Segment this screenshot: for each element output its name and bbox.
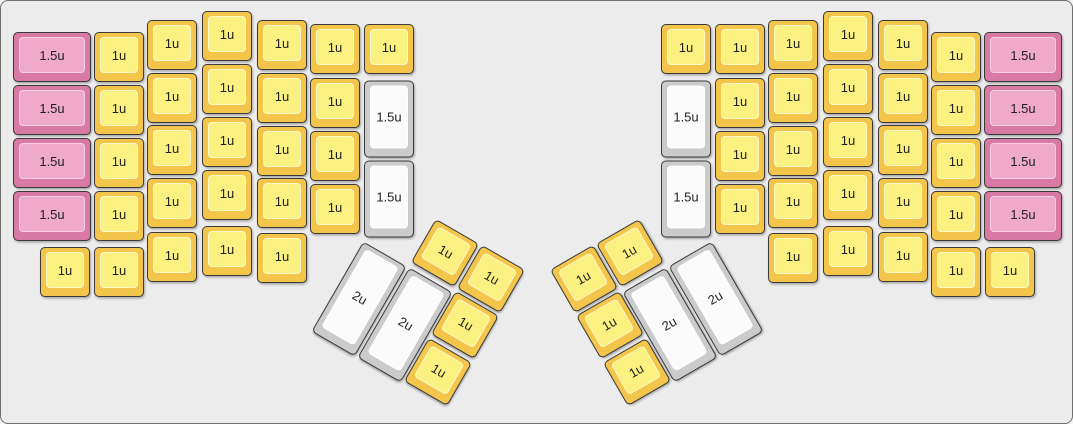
keycap-1_5u-pink[interactable]: 1.5u [984,32,1062,82]
keycap-size-label: 1u [328,148,342,161]
keycap-top-face: 1u [100,252,138,288]
keycap-size-label: 1.5u [1010,102,1035,115]
keycap-size-label: 1u [841,187,855,200]
keycap-size-label: 1.5u [1010,49,1035,62]
keycap-top-face: 1u [46,252,84,288]
keycap-1u-yellow[interactable]: 1u [257,126,307,176]
keycap-size-label: 1u [733,148,747,161]
keycap-size-label: 1u [841,81,855,94]
keycap-size-label: 1u [949,208,963,221]
keycap-1_5u-pink[interactable]: 1.5u [984,138,1062,188]
keycap-1u-yellow[interactable]: 1u [94,32,144,82]
keycap-size-label: 1u [112,208,126,221]
keycap-size-label: 1u [679,41,693,54]
keycap-1u-yellow[interactable]: 1u [931,85,981,135]
keycap-top-face: 1u [721,189,759,225]
keycap-size-label: 1u [328,41,342,54]
keycap-top-face: 1u [937,37,975,73]
keycap-top-face: 1u [721,83,759,119]
keycap-top-face: 1u [991,252,1029,288]
keycap-size-label: 1u [786,195,800,208]
keycap-1u-yellow[interactable]: 1u [202,226,252,276]
keycap-size-label: 1u [841,28,855,41]
keycap-size-label: 1u [112,264,126,277]
keycap-top-face: 1u [414,345,465,395]
keycap-size-label: 1u [112,102,126,115]
keycap-1u-yellow[interactable]: 1u [878,20,928,70]
keycap-top-face: 1u [100,37,138,73]
keycap-size-label: 1u [573,268,592,286]
keycap-top-face: 1u [937,90,975,126]
keycap-1u-yellow[interactable]: 1u [257,73,307,123]
keycap-top-face: 1u [100,143,138,179]
keycap-1_5u-pink[interactable]: 1.5u [13,138,91,188]
keycap-1u-yellow[interactable]: 1u [94,138,144,188]
keycap-1u-yellow[interactable]: 1u [202,170,252,220]
keycap-size-label: 1u [456,314,475,332]
keycap-1u-yellow[interactable]: 1u [147,125,197,175]
keycap-top-face: 1u [774,183,812,219]
keycap-1u-yellow[interactable]: 1u [768,126,818,176]
keycap-1u-yellow[interactable]: 1u [823,64,873,114]
keycap-size-label: 1.5u [39,102,64,115]
keycap-top-face: 1u [153,183,191,219]
keycap-top-face: 1.5u [990,90,1056,126]
keycap-top-face: 1u [774,78,812,114]
keycap-1u-yellow[interactable]: 1u [823,11,873,61]
keycap-1u-yellow[interactable]: 1u [931,247,981,297]
keycap-1u-yellow[interactable]: 1u [878,178,928,228]
keycap-1u-yellow[interactable]: 1u [147,178,197,228]
keycap-size-label: 1u [220,28,234,41]
keycap-size-label: 1u [275,143,289,156]
keycap-size-label: 1u [786,250,800,263]
keycap-top-face: 1u [153,130,191,166]
keycap-size-label: 1u [165,90,179,103]
keycap-1u-yellow[interactable]: 1u [202,11,252,61]
keycap-1u-yellow[interactable]: 1u [310,78,360,128]
keycap-top-face: 1u [316,136,354,172]
keycap-1u-yellow[interactable]: 1u [768,178,818,228]
keycap-top-face: 1u [153,237,191,273]
keycap-top-face: 1u [208,16,246,52]
keycap-1u-yellow[interactable]: 1u [310,184,360,234]
keycap-size-label: 1u [733,95,747,108]
keycap-1_5u-pink[interactable]: 1.5u [13,191,91,241]
keycap-size-label: 1u [786,90,800,103]
keycap-size-label: 1u [436,242,455,260]
keycap-size-label: 1u [786,143,800,156]
keycap-1_5u-pink[interactable]: 1.5u [13,32,91,82]
keycap-top-face: 1u [370,29,408,65]
keycap-size-label: 1u [328,95,342,108]
keycap-size-label: 1u [220,134,234,147]
keycap-1u-yellow[interactable]: 1u [202,64,252,114]
keycap-size-label: 1.5u [673,191,698,204]
keycap-top-face: 1u [208,122,246,158]
keycap-1_5u-pink[interactable]: 1.5u [13,85,91,135]
keycap-top-face: 1.5u [370,86,408,149]
keycap-size-label: 1u [896,37,910,50]
keycap-1u-yellow[interactable]: 1u [715,131,765,181]
keycap-1u-yellow[interactable]: 1u [715,78,765,128]
keycap-top-face: 1u [667,29,705,65]
keycap-size-label: 1u [382,41,396,54]
keycap-1u-yellow[interactable]: 1u [931,32,981,82]
keycap-top-face: 1.5u [19,90,85,126]
keycap-top-face: 1.5u [990,143,1056,179]
keycap-size-label: 1u [429,361,448,379]
keycap-1u-yellow[interactable]: 1u [768,20,818,70]
keycap-size-label: 1u [733,41,747,54]
keycap-size-label: 1u [165,195,179,208]
keycap-1u-yellow[interactable]: 1u [931,191,981,241]
keycap-top-face: 1u [208,175,246,211]
keycap-size-label: 2u [350,288,369,306]
keycap-1u-yellow[interactable]: 1u [823,226,873,276]
keycap-size-label: 1u [896,249,910,262]
keycap-1u-yellow[interactable]: 1u [768,233,818,283]
keycap-1u-yellow[interactable]: 1u [931,138,981,188]
keycap-1u-yellow[interactable]: 1u [661,24,711,74]
keycap-top-face: 1u [884,183,922,219]
keycap-top-face: 1u [263,25,301,61]
keycap-1u-yellow[interactable]: 1u [364,24,414,74]
keycap-size-label: 1u [275,37,289,50]
keycap-top-face: 1.5u [667,166,705,229]
keycap-size-label: 1u [786,37,800,50]
keycap-size-label: 1u [599,314,618,332]
keycap-top-face: 1u [263,131,301,167]
keycap-size-label: 1u [896,90,910,103]
keycap-size-label: 1u [275,195,289,208]
keycap-1_5u-white[interactable]: 1.5u [364,161,414,238]
keycap-1u-yellow[interactable]: 1u [310,24,360,74]
keycap-top-face: 1u [884,78,922,114]
keycap-top-face: 1u [829,231,867,267]
keycap-size-label: 1u [58,264,72,277]
keycap-1u-yellow[interactable]: 1u [202,117,252,167]
keycap-1_5u-white[interactable]: 1.5u [661,161,711,238]
keycap-1u-yellow[interactable]: 1u [147,232,197,282]
keycap-1u-yellow[interactable]: 1u [147,73,197,123]
keycap-size-label: 1u [949,102,963,115]
keycap-size-label: 1.5u [39,49,64,62]
keycap-top-face: 1u [721,29,759,65]
keycap-top-face: 1u [584,298,635,348]
keycap-top-face: 1u [441,298,492,348]
keycap-top-face: 1u [774,131,812,167]
keycap-top-face: 1u [316,83,354,119]
keycap-top-face: 1u [829,69,867,105]
keycap-size-label: 1.5u [673,111,698,124]
keycap-size-label: 1.5u [1010,208,1035,221]
keycap-top-face: 1u [937,143,975,179]
keycap-size-label: 1u [1003,264,1017,277]
keycap-size-label: 1u [896,195,910,208]
keycap-top-face: 1.5u [19,143,85,179]
keycap-top-face: 1u [774,238,812,274]
keycap-1u-yellow[interactable]: 1u [257,233,307,283]
keycap-top-face: 1.5u [990,37,1056,73]
keycap-top-face: 1u [100,196,138,232]
keycap-top-face: 1u [937,252,975,288]
keycap-top-face: 1u [263,238,301,274]
keycap-1u-yellow[interactable]: 1u [715,24,765,74]
keycap-size-label: 1u [275,250,289,263]
keycap-size-label: 1u [949,49,963,62]
keycap-top-face: 1.5u [19,196,85,232]
keycap-top-face: 1u [829,175,867,211]
keycap-top-face: 1u [937,196,975,232]
keycap-top-face: 1u [153,25,191,61]
keycap-top-face: 1.5u [667,86,705,149]
keycap-top-face: 1u [884,25,922,61]
keycap-top-face: 1u [263,183,301,219]
keycap-size-label: 2u [396,314,415,332]
keycap-size-label: 1.5u [376,111,401,124]
keycap-top-face: 1.5u [370,166,408,229]
keycap-size-label: 1u [112,155,126,168]
keycap-size-label: 1u [626,361,645,379]
keycap-1u-yellow[interactable]: 1u [94,85,144,135]
keycap-1u-yellow[interactable]: 1u [823,117,873,167]
keycap-top-face: 1u [153,78,191,114]
keycap-top-face: 1u [467,252,518,302]
keycap-size-label: 1u [165,37,179,50]
keycap-1u-yellow[interactable]: 1u [878,232,928,282]
keycap-top-face: 1u [884,237,922,273]
keycap-size-label: 1u [841,134,855,147]
keycap-top-face: 1u [558,252,609,302]
keycap-1u-yellow[interactable]: 1u [768,73,818,123]
keycap-1u-yellow[interactable]: 1u [985,247,1035,297]
keycap-1u-yellow[interactable]: 1u [147,20,197,70]
keycap-top-face: 1u [829,16,867,52]
keycap-size-label: 1u [220,81,234,94]
keycap-size-label: 1u [841,243,855,256]
keycap-top-face: 1u [721,136,759,172]
keycap-top-face: 1.5u [19,37,85,73]
keycap-1u-yellow[interactable]: 1u [310,131,360,181]
keycap-1_5u-white[interactable]: 1.5u [364,81,414,158]
keycap-top-face: 1u [208,69,246,105]
keycap-1u-yellow[interactable]: 1u [94,247,144,297]
keycap-1_5u-pink[interactable]: 1.5u [984,191,1062,241]
keycap-top-face: 1.5u [990,196,1056,232]
keycap-top-face: 1u [316,189,354,225]
keycap-1u-yellow[interactable]: 1u [715,184,765,234]
keycap-1_5u-white[interactable]: 1.5u [661,81,711,158]
keycap-size-label: 1u [896,142,910,155]
keycap-top-face: 1u [829,122,867,158]
keycap-size-label: 1.5u [39,208,64,221]
keycap-1u-yellow[interactable]: 1u [257,178,307,228]
keycap-size-label: 1u [275,90,289,103]
keycap-1_5u-pink[interactable]: 1.5u [984,85,1062,135]
keycap-size-label: 1u [165,249,179,262]
keycap-size-label: 1u [220,243,234,256]
keycap-top-face: 1u [208,231,246,267]
keycap-1u-yellow[interactable]: 1u [823,170,873,220]
keycap-top-face: 1u [611,345,662,395]
keycap-1u-yellow[interactable]: 1u [878,125,928,175]
keycap-size-label: 1u [112,49,126,62]
keycap-size-label: 1u [733,201,747,214]
keycap-size-label: 1.5u [1010,155,1035,168]
keycap-1u-yellow[interactable]: 1u [257,20,307,70]
keycap-size-label: 1u [220,187,234,200]
keycap-size-label: 2u [705,288,724,306]
keyboard-layout-canvas: 1.5u1.5u1.5u1.5u1u1u1u1u1u1u1u1u1u1u1u1u… [0,0,1073,424]
keycap-size-label: 2u [659,314,678,332]
keycap-size-label: 1u [165,142,179,155]
keycap-top-face: 1u [316,29,354,65]
keycap-size-label: 1u [482,268,501,286]
keycap-1u-yellow[interactable]: 1u [878,73,928,123]
keycap-size-label: 1u [949,264,963,277]
keycap-top-face: 1u [100,90,138,126]
keycap-1u-yellow[interactable]: 1u [40,247,90,297]
keycap-size-label: 1.5u [376,191,401,204]
keycap-size-label: 1u [619,242,638,260]
keycap-size-label: 1u [949,155,963,168]
keycap-top-face: 1u [884,130,922,166]
keycap-top-face: 1u [604,226,655,276]
keycap-1u-yellow[interactable]: 1u [94,191,144,241]
keycap-size-label: 1u [328,201,342,214]
keycap-top-face: 1u [774,25,812,61]
keycap-top-face: 1u [421,226,472,276]
keycap-size-label: 1.5u [39,155,64,168]
keycap-top-face: 1u [263,78,301,114]
